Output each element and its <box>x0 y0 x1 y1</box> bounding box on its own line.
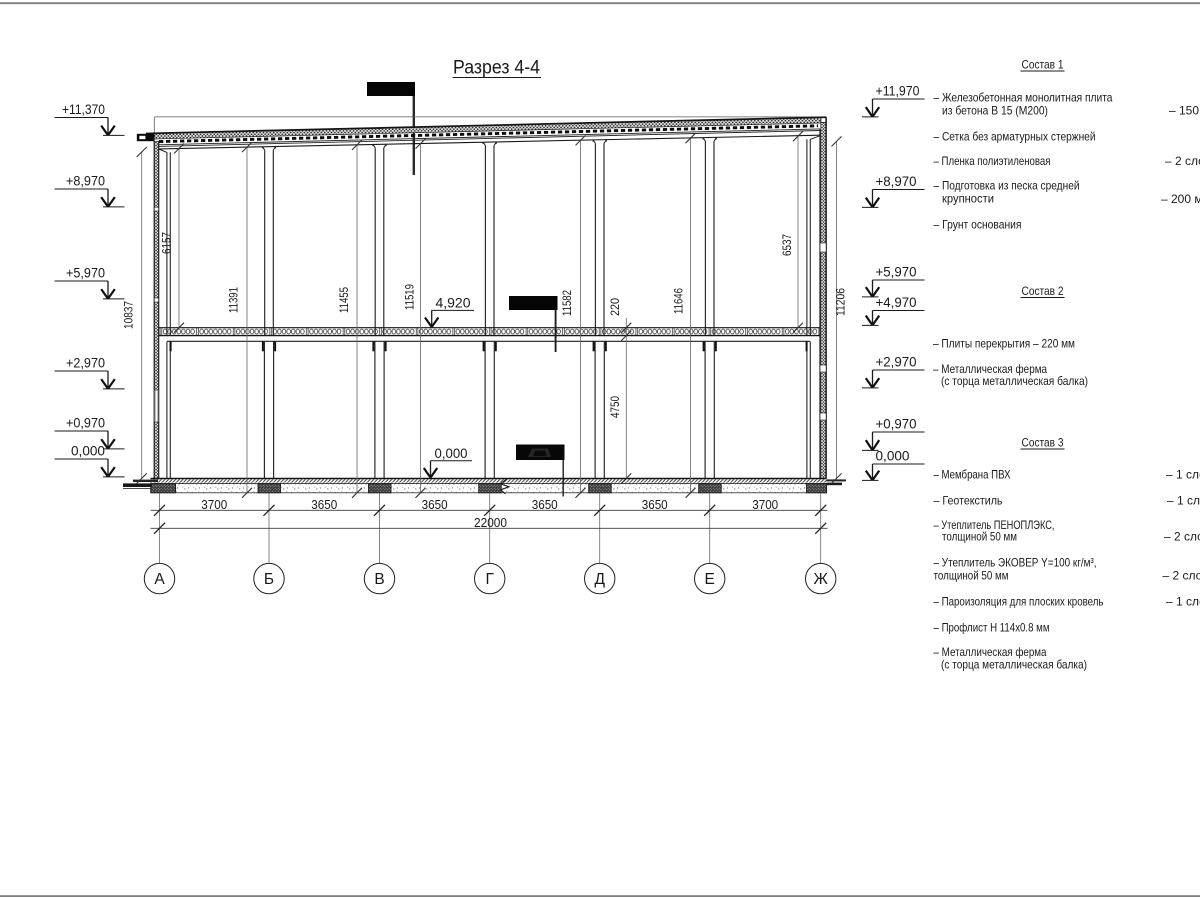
svg-text:4750: 4750 <box>608 396 622 418</box>
svg-text:А: А <box>154 571 165 588</box>
svg-text:Б: Б <box>264 571 274 588</box>
svg-text:+8,970: +8,970 <box>66 173 105 189</box>
svg-text:3650: 3650 <box>532 497 558 512</box>
svg-text:– Утеплитель ЭКОВЕР Y=100 кг/м: – Утеплитель ЭКОВЕР Y=100 кг/м³, <box>934 556 1097 570</box>
svg-text:10837: 10837 <box>122 301 136 329</box>
svg-text:3700: 3700 <box>752 497 778 512</box>
svg-text:+8,970: +8,970 <box>876 173 917 189</box>
svg-text:+0,970: +0,970 <box>876 416 917 432</box>
svg-text:– 2 слоя: – 2 слоя <box>1164 530 1200 544</box>
svg-text:из бетона В 15 (М200): из бетона В 15 (М200) <box>942 104 1048 118</box>
svg-text:4,920: 4,920 <box>436 295 471 311</box>
svg-text:3650: 3650 <box>311 497 337 512</box>
svg-text:11646: 11646 <box>672 288 686 314</box>
svg-text:– 200 мм: – 200 мм <box>1161 192 1200 206</box>
svg-text:11455: 11455 <box>337 287 351 313</box>
svg-text:6157: 6157 <box>160 232 174 254</box>
svg-text:– Профлист Н 114х0.8 мм: – Профлист Н 114х0.8 мм <box>934 621 1050 635</box>
svg-text:0,000: 0,000 <box>435 445 468 461</box>
svg-text:+5,970: +5,970 <box>876 264 917 280</box>
svg-text:Е: Е <box>705 571 715 588</box>
svg-text:Разрез 4-4: Разрез 4-4 <box>453 58 540 79</box>
svg-text:– 1 слой: – 1 слой <box>1166 595 1200 609</box>
svg-text:крупности: крупности <box>942 192 994 206</box>
svg-text:11206: 11206 <box>834 288 848 316</box>
svg-text:– Грунт основания: – Грунт основания <box>934 218 1022 232</box>
svg-text:– 1 слой: – 1 слой <box>1167 494 1200 508</box>
svg-text:11582: 11582 <box>560 290 574 316</box>
svg-text:– Плиты перекрытия – 220 мм: – Плиты перекрытия – 220 мм <box>933 337 1075 351</box>
svg-text:Состав 2: Состав 2 <box>1022 284 1064 298</box>
svg-text:– 2 слоя: – 2 слоя <box>1163 569 1200 583</box>
svg-text:(с торца металлическая балка): (с торца металлическая балка) <box>941 658 1087 672</box>
svg-text:– Геотекстиль: – Геотекстиль <box>934 494 1003 508</box>
svg-text:+11,970: +11,970 <box>876 83 920 99</box>
svg-text:3650: 3650 <box>642 497 668 512</box>
svg-text:Д: Д <box>594 571 605 588</box>
svg-text:22000: 22000 <box>474 515 507 530</box>
svg-text:11391: 11391 <box>227 287 241 313</box>
svg-text:толщиной 50 мм: толщиной 50 мм <box>942 530 1017 544</box>
svg-text:– Пленка полиэтиленовая: – Пленка полиэтиленовая <box>934 154 1051 168</box>
svg-text:+11,370: +11,370 <box>62 101 105 117</box>
svg-text:– Сетка без арматурных стержне: – Сетка без арматурных стержней <box>934 130 1096 144</box>
svg-text:+5,970: +5,970 <box>66 265 105 281</box>
svg-text:3650: 3650 <box>422 497 448 512</box>
svg-text:+0,970: +0,970 <box>66 415 105 431</box>
svg-text:6537: 6537 <box>780 234 794 256</box>
svg-text:Состав 3: Состав 3 <box>1022 436 1064 450</box>
svg-text:Ж: Ж <box>814 571 829 588</box>
svg-text:(с торца металлическая балка): (с торца металлическая балка) <box>941 374 1088 388</box>
svg-text:11519: 11519 <box>403 284 417 310</box>
svg-text:+4,970: +4,970 <box>876 294 917 310</box>
svg-text:3700: 3700 <box>201 497 227 512</box>
svg-text:Состав 1: Состав 1 <box>1022 58 1064 72</box>
svg-text:+2,970: +2,970 <box>876 354 917 370</box>
svg-text:– Подготовка из песка средней: – Подготовка из песка средней <box>934 179 1080 193</box>
svg-text:– Пароизоляция для плоских кро: – Пароизоляция для плоских кровель <box>934 595 1104 609</box>
svg-text:– 150 мм: – 150 мм <box>1169 104 1200 118</box>
svg-text:В: В <box>374 571 384 588</box>
svg-text:0,000: 0,000 <box>71 443 105 459</box>
svg-text:+2,970: +2,970 <box>66 355 105 371</box>
svg-text:0,000: 0,000 <box>876 448 910 464</box>
svg-text:толщиной 50 мм: толщиной 50 мм <box>934 569 1009 583</box>
svg-text:– 2 слоя: – 2 слоя <box>1165 154 1200 168</box>
svg-text:– Железобетонная монолитная п: – Железобетонная монолитная плита <box>934 91 1113 105</box>
svg-text:– Мембрана ПВХ: – Мембрана ПВХ <box>934 468 1011 482</box>
svg-text:Г: Г <box>485 571 494 588</box>
svg-text:220: 220 <box>608 298 622 316</box>
svg-text:– 1 слой: – 1 слой <box>1166 468 1200 482</box>
